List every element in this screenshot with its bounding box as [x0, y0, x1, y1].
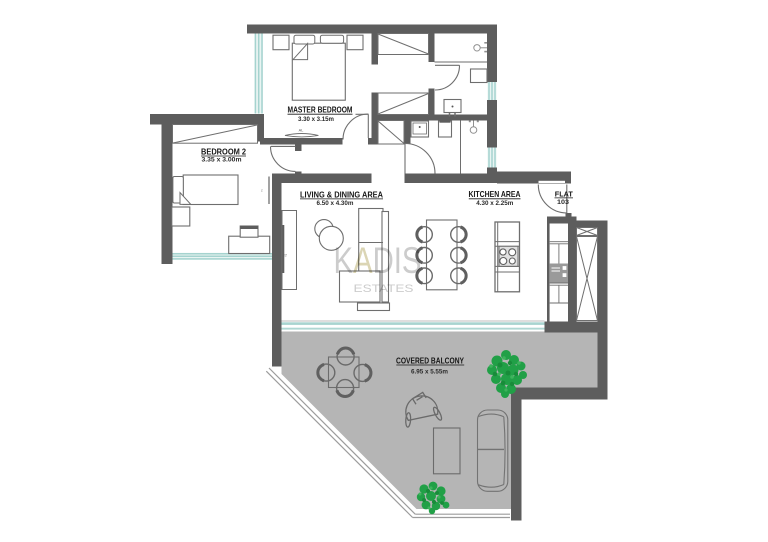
svg-text:KADIS: KADIS: [334, 240, 422, 281]
svg-text:z: z: [261, 189, 263, 193]
svg-text:FLAT: FLAT: [555, 189, 574, 198]
svg-text:KITCHEN AREA: KITCHEN AREA: [469, 189, 521, 199]
svg-text:tv: tv: [284, 254, 288, 257]
svg-text:103: 103: [557, 199, 569, 206]
svg-text:6.95 x 5.55m: 6.95 x 5.55m: [411, 369, 448, 376]
svg-text:ESTATES: ESTATES: [354, 283, 414, 295]
svg-text:BEDROOM 2: BEDROOM 2: [201, 146, 246, 156]
svg-text:MASTER BEDROOM: MASTER BEDROOM: [288, 105, 353, 115]
svg-text:LIVING & DINING AREA: LIVING & DINING AREA: [300, 189, 383, 199]
svg-text:3.30 x 3.15m: 3.30 x 3.15m: [298, 116, 334, 123]
svg-text:3.35 x 3.00m: 3.35 x 3.00m: [202, 156, 242, 163]
svg-text:6.50 x 4.30m: 6.50 x 4.30m: [317, 200, 354, 207]
svg-text:COVERED BALCONY: COVERED BALCONY: [396, 355, 464, 365]
svg-text:AL: AL: [299, 129, 304, 133]
svg-text:4.30 x 2.25m: 4.30 x 2.25m: [476, 200, 513, 207]
